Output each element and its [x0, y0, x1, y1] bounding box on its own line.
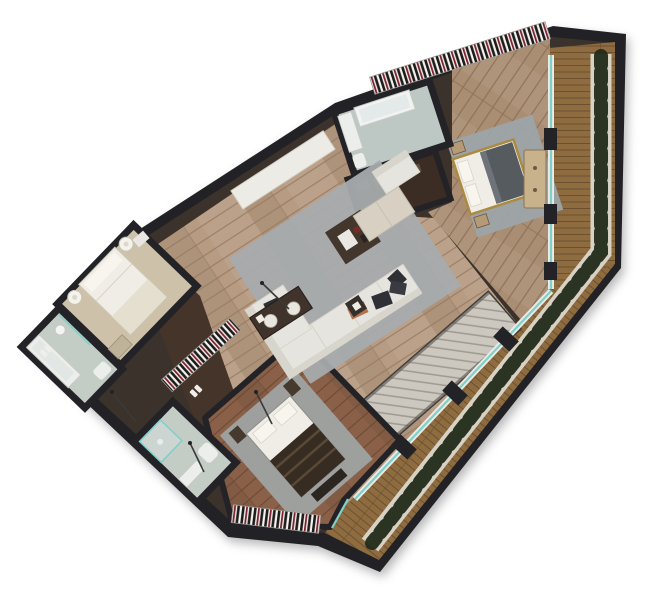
- floor-plan: [0, 0, 660, 615]
- window-mullion: [544, 262, 557, 280]
- window-mullion: [544, 204, 557, 224]
- window-mullion: [544, 128, 557, 150]
- floor-plan-canvas: [0, 0, 660, 615]
- master-dresser: [524, 150, 546, 208]
